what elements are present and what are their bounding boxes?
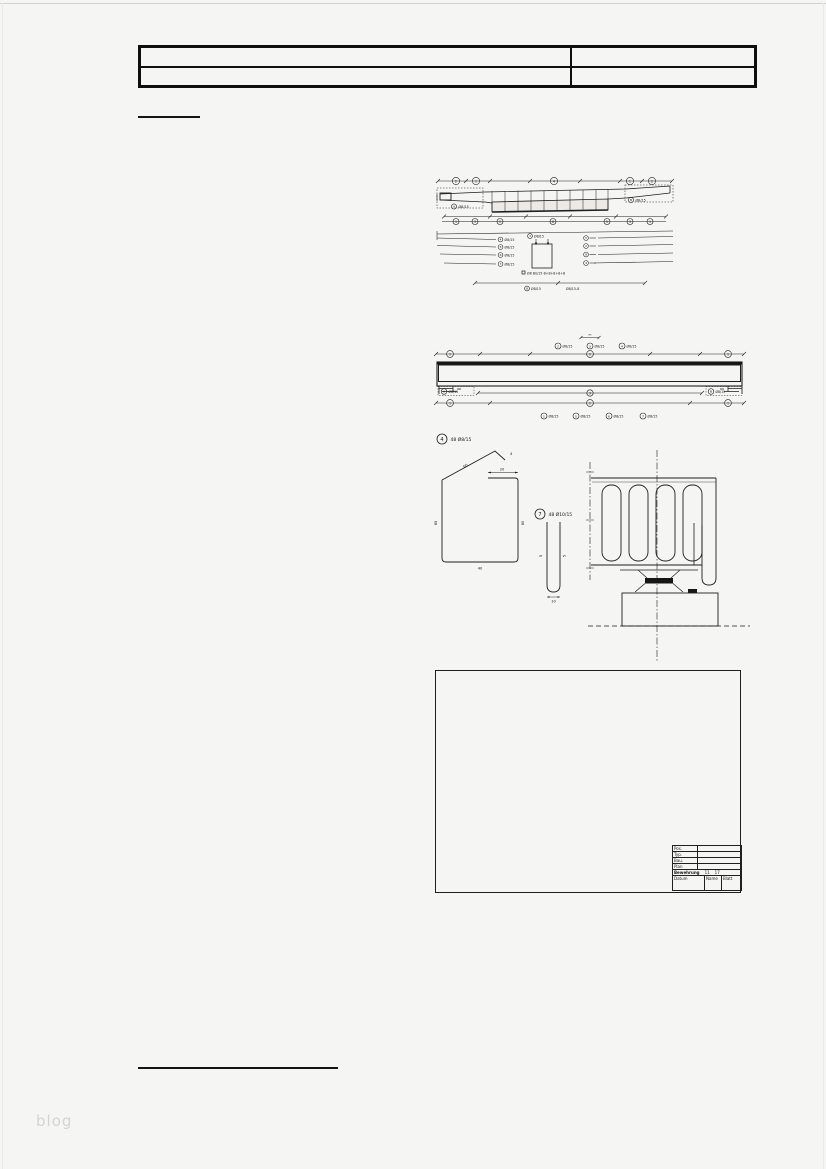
dim-marker: 3 [629, 220, 631, 224]
page-edge-top [0, 3, 826, 4]
scanned-drawing-page: 2 1 4 1 2 A Ø8/15 B Ø8/15 [0, 0, 826, 1169]
dim-marker: 4 [553, 179, 555, 183]
dim-label: 40 [478, 567, 483, 571]
watermark-text: blog [36, 1112, 72, 1130]
dim-marker: 1 [629, 179, 631, 183]
title-block-columns: Datum Name Blatt [673, 876, 741, 890]
dim-marker: 2 [455, 179, 457, 183]
callout-mark: 5 [500, 245, 502, 249]
bearing-pad [620, 570, 698, 593]
dim-marker: 2 [589, 352, 591, 356]
callout-label: Ø8/15 [716, 389, 726, 394]
dim-marker: 1 [475, 179, 477, 183]
callout-mark: 7 [500, 262, 502, 266]
callout-mark: 2 [557, 344, 559, 348]
foundation-block [622, 593, 718, 626]
title-block-column-header: Datum [674, 876, 688, 881]
callout-label: Ø8/15 [449, 389, 459, 394]
details-drawing: 4 48 Ø8/15 20 4 60 85 80 40 7 48 Ø10/15 … [430, 428, 750, 663]
dim-marker: 1 [649, 220, 651, 224]
title-block-field-label: Plan [673, 864, 698, 869]
callout-label: Ø8/15 [627, 343, 637, 348]
dim-label: 85 [434, 521, 438, 526]
title-block-field-label: Typ. [673, 852, 698, 857]
callout-mark: 8 [526, 287, 528, 291]
callout-mark: 9 [585, 253, 587, 257]
title-block-field-value [698, 858, 741, 863]
title-block-field-value [698, 852, 741, 857]
rebar-callout-fan: 4 Ø8/15 5 Ø8/15 6 Ø8/15 7 Ø8/15 5 2 9 4 [437, 231, 673, 266]
dim-marker: 1 [449, 352, 451, 356]
title-block-field-value [698, 864, 741, 869]
title-block-column: Name [705, 876, 722, 890]
bar-label: 48 Ø8/15 [451, 436, 472, 443]
dim-label: 80 [521, 520, 525, 525]
callout-label: Ø8/15 [581, 413, 591, 418]
footer-rule [138, 1067, 338, 1069]
callout-mark: 4 [500, 238, 502, 242]
beam-elevation-drawing: m 2 Ø8/15 3 Ø8/15 4 Ø8/15 1 2 1 [430, 330, 750, 430]
header-cell-bottom-right [572, 68, 754, 85]
beam-support-section [586, 450, 750, 661]
title-block-column: Blatt [722, 876, 741, 890]
plan-top-dimension-line: 2 1 4 1 2 [436, 177, 674, 184]
callout-label: Ø8/15 [505, 252, 515, 257]
header-cell-top-right [572, 48, 754, 66]
callout-label: Ø8/15 [534, 233, 544, 238]
title-block: Pos. Typ. Bau. Plan Bewehrung 11 17 Da [672, 845, 742, 891]
elevation-bottom-dimensions: 3 1 2 1 1 Ø8/15 5 Ø8/15 6 Ø8/15 7 Ø8/15 [434, 390, 746, 419]
dim-label: 4 [510, 452, 513, 456]
dim-marker: 2 [589, 401, 591, 405]
stirrup-bending-detail: 4 48 Ø8/15 20 4 60 85 80 40 [434, 434, 525, 571]
dim-marker: 8 [552, 220, 554, 224]
dim-marker: 3 [589, 391, 591, 395]
callout-mark: B [710, 390, 712, 394]
stirrup-note: Ø8 Bü/15-8+8+8+8+8 [527, 271, 565, 276]
callout-mark: 4 [621, 344, 623, 348]
elevation-top-dimensions: m 2 Ø8/15 3 Ø8/15 4 Ø8/15 1 2 1 [434, 333, 746, 358]
title-block-field-label: Bau. [673, 858, 698, 863]
title-block-scale-a: 11 [705, 870, 710, 875]
title-block-field-value [698, 846, 741, 851]
bar-label: 48 Ø10/15 [549, 511, 573, 518]
title-block-scale-text: Bewehrung [674, 870, 700, 875]
dim-marker: 5 [606, 220, 608, 224]
dim-marker: 1 [449, 401, 451, 405]
dim-marker: 1 [455, 220, 457, 224]
callout-label: Ø8/15 [505, 261, 515, 266]
header-table [138, 45, 757, 88]
callout-mark: 6 [500, 253, 502, 257]
dim-label: 10 [551, 600, 556, 604]
callout-label: Ø8/15 [549, 413, 559, 418]
dim-marker: 5 [499, 220, 501, 224]
callout-mark: 7 [642, 414, 644, 418]
dim-label: 5 [563, 555, 567, 557]
dim-marker: 3 [474, 220, 476, 224]
dim-label: 20 [500, 468, 505, 472]
title-block-column-header: Blatt [723, 876, 732, 881]
span-label: m [589, 333, 592, 337]
callout-label: Ø8/15 [505, 244, 515, 249]
bar-mark: 4 [440, 437, 443, 443]
dim-marker: 1 [727, 352, 729, 356]
title-block-column: Datum [673, 876, 705, 890]
callout-mark: 1 [543, 414, 545, 418]
title-block-scale-b: 17 [715, 870, 720, 875]
callout-label: Ø8/15 [459, 204, 469, 209]
callout-mark: 5 [575, 414, 577, 418]
beam-plan-drawing: 2 1 4 1 2 A Ø8/15 B Ø8/15 [430, 168, 680, 298]
bar-mark: 7 [538, 512, 541, 518]
title-block-field-label: Pos. [673, 846, 698, 851]
callout-label: Ø8/15-8 [566, 286, 579, 291]
dim-label: 5 [539, 555, 543, 557]
callout-mark: 2 [585, 244, 587, 248]
dim-marker: 1 [727, 401, 729, 405]
beam-body [437, 362, 742, 386]
callout-mark: 5 [585, 236, 587, 240]
page-edge-right [823, 3, 824, 1169]
callout-mark: 3 [589, 344, 591, 348]
page-edge-left [2, 3, 3, 1169]
title-block-column-header: Name [706, 876, 718, 881]
callout-mark: 3 [529, 234, 531, 238]
dim-marker: 2 [651, 179, 653, 183]
callout-label: Ø8/15 [614, 413, 624, 418]
callout-mark: 4 [585, 261, 587, 265]
hairpin-bending-detail: 7 48 Ø10/15 5 5 10 [535, 509, 572, 604]
header-cell-top-left [141, 48, 570, 66]
callout-label: Ø8/15 [636, 198, 646, 203]
callout-label: Ø8/15 [648, 413, 658, 418]
plan-lower-dimension-lines: 1 3 5 8 5 3 1 [442, 215, 668, 225]
callout-label: Ø8/15 [505, 237, 515, 242]
callout-label: Ø8/15 [595, 343, 605, 348]
title-underline [138, 116, 200, 118]
callout-mark: B [630, 198, 632, 202]
callout-mark: 6 [608, 414, 610, 418]
callout-label: Ø8/15 [531, 286, 541, 291]
callout-label: Ø8/15 [563, 343, 573, 348]
drawing-frame: Pos. Typ. Bau. Plan Bewehrung 11 17 Da [435, 670, 741, 893]
header-cell-bottom-left [141, 68, 570, 85]
